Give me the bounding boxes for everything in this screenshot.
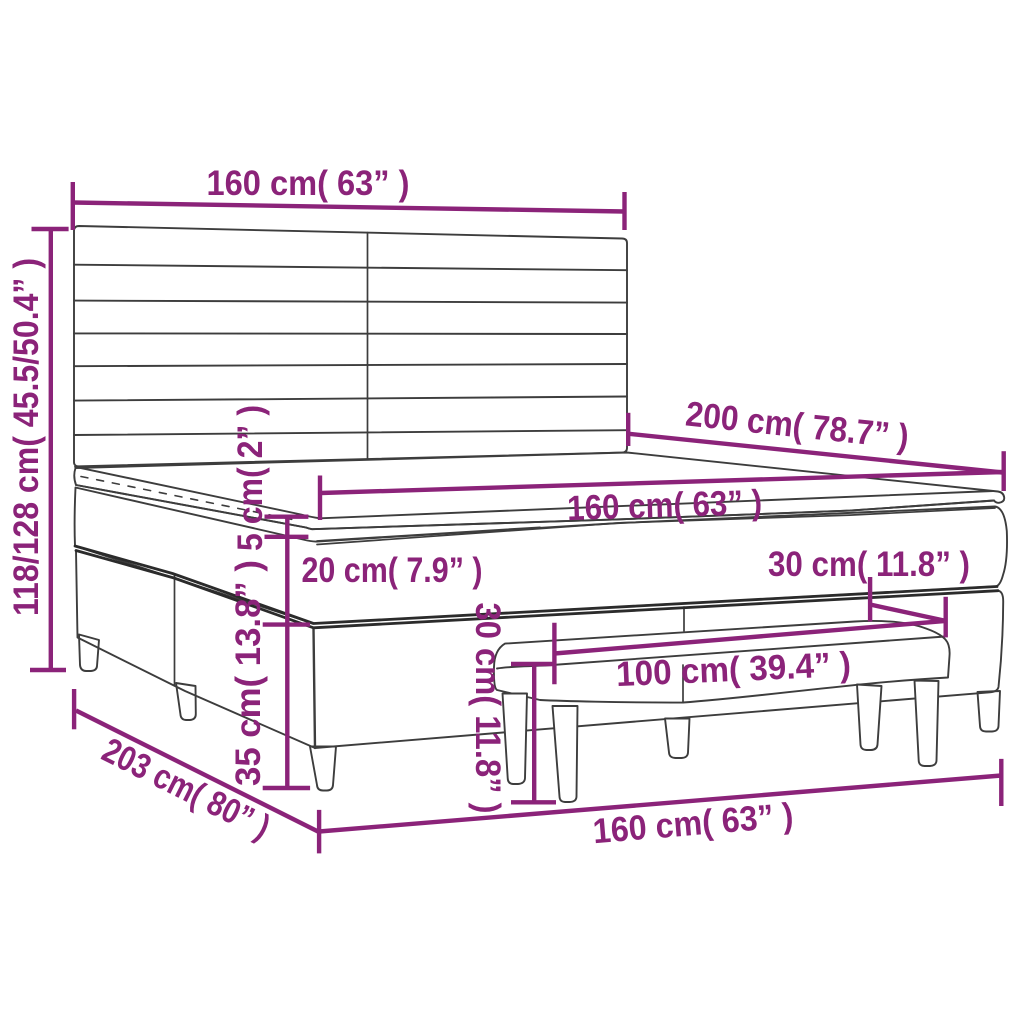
svg-text:35 cm( 13.8” ): 35 cm( 13.8” ): [229, 560, 268, 786]
svg-text:30 cm( 11.8” ): 30 cm( 11.8” ): [768, 545, 970, 584]
svg-text:30 cm( 11.8” ): 30 cm( 11.8” ): [468, 603, 507, 814]
svg-text:160 cm( 63” ): 160 cm( 63” ): [567, 483, 763, 528]
svg-text:20 cm( 7.9” ): 20 cm( 7.9” ): [302, 551, 483, 590]
svg-text:160 cm( 63” ): 160 cm( 63” ): [207, 164, 410, 203]
svg-text:5 cm( 2” ): 5 cm( 2” ): [231, 405, 270, 551]
svg-text:118/128 cm( 45.5/50.4” ): 118/128 cm( 45.5/50.4” ): [7, 258, 46, 616]
